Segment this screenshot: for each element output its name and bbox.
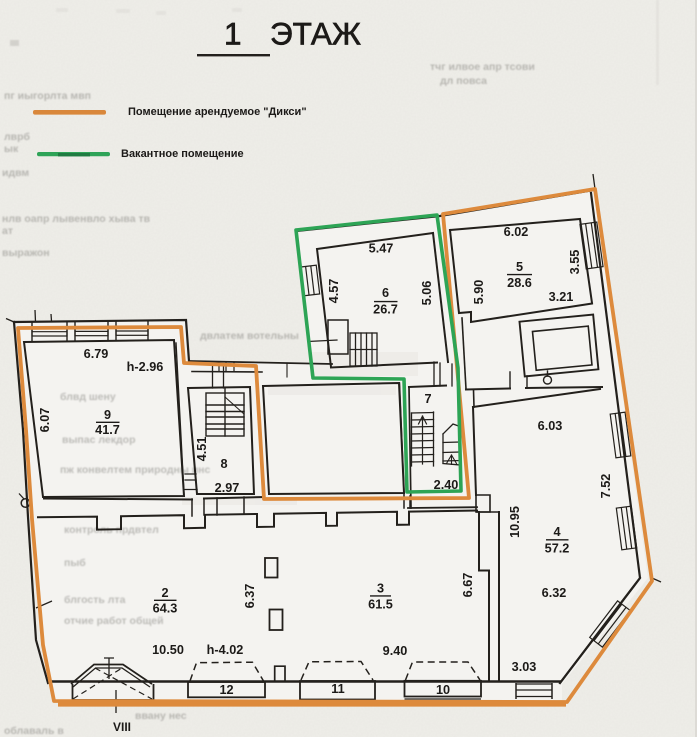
svg-text:26.7: 26.7 [373,303,398,317]
svg-text:4.57: 4.57 [327,279,341,304]
svg-text:4.51: 4.51 [195,437,209,462]
svg-text:VIII: VIII [113,720,131,734]
svg-text:пж конвелтем природны инс: пж конвелтем природны инс [60,464,211,476]
svg-text:отчие работ общей: отчие работ общей [64,615,164,627]
svg-text:контроль прдвтел: контроль прдвтел [64,524,159,536]
svg-text:7: 7 [424,392,431,406]
svg-text:57.2: 57.2 [545,542,570,556]
svg-text:64.3: 64.3 [153,602,178,616]
svg-text:7.52: 7.52 [599,474,613,499]
svg-text:5.06: 5.06 [420,281,434,306]
svg-text:Помещение арендуемое "Дикси": Помещение арендуемое "Дикси" [128,106,307,118]
svg-text:облаваль в: облаваль в [4,725,64,737]
svg-text:Вакантное помещение: Вакантное помещение [121,148,244,160]
svg-text:3.55: 3.55 [568,250,582,275]
svg-text:блгость лта: блгость лта [64,594,126,606]
svg-text:6.32: 6.32 [542,586,567,600]
svg-text:пг иыгорлта мвп: пг иыгорлта мвп [4,90,91,102]
svg-text:3.03: 3.03 [512,660,537,674]
svg-text:2: 2 [161,586,168,600]
svg-text:9.40: 9.40 [383,644,408,658]
svg-text:2.40: 2.40 [434,478,459,492]
svg-text:6.03: 6.03 [538,419,563,433]
svg-text:5: 5 [516,260,523,274]
svg-text:5.47: 5.47 [369,242,394,256]
svg-text:ЭТАЖ: ЭТАЖ [270,16,361,52]
svg-text:лврб: лврб [4,131,31,143]
svg-text:ввану нес: ввану нес [135,710,187,722]
svg-text:6.79: 6.79 [84,347,109,361]
svg-text:пыб: пыб [64,557,86,569]
svg-text:6: 6 [382,286,389,300]
svg-text:12: 12 [219,683,233,697]
svg-text:8: 8 [220,457,227,471]
svg-text:ык: ык [4,143,19,155]
svg-text:двлатем вотельны: двлатем вотельны [200,330,299,342]
svg-text:1: 1 [224,16,242,52]
svg-text:9: 9 [104,408,111,422]
svg-text:3: 3 [377,582,384,596]
svg-text:h-4.02: h-4.02 [207,643,244,657]
svg-text:61.5: 61.5 [368,598,393,612]
svg-text:выражон: выражон [2,247,50,259]
svg-text:5.90: 5.90 [472,280,486,305]
svg-text:10.95: 10.95 [508,506,522,538]
svg-text:6.07: 6.07 [38,408,52,433]
svg-text:3.21: 3.21 [549,290,574,304]
svg-text:6.02: 6.02 [504,225,529,239]
svg-text:10.50: 10.50 [152,643,184,657]
svg-text:11: 11 [331,682,344,696]
svg-text:ат: ат [2,225,13,237]
svg-text:28.6: 28.6 [507,276,532,290]
svg-text:4: 4 [553,525,560,539]
svg-text:тчг илвое апр тсови: тчг илвое апр тсови [430,61,535,73]
svg-text:блвд шену: блвд шену [60,391,116,403]
svg-text:идвм: идвм [2,167,29,179]
svg-text:дл повса: дл повса [440,75,487,87]
svg-text:выпас лекдор: выпас лекдор [62,434,135,446]
svg-text:h-2.96: h-2.96 [127,360,164,374]
svg-text:нлв оапр лывенвло хыва тв: нлв оапр лывенвло хыва тв [2,213,151,225]
svg-text:10: 10 [436,683,450,697]
svg-text:6.67: 6.67 [461,573,475,598]
svg-text:6.37: 6.37 [243,584,257,609]
svg-text:2.97: 2.97 [215,481,240,495]
